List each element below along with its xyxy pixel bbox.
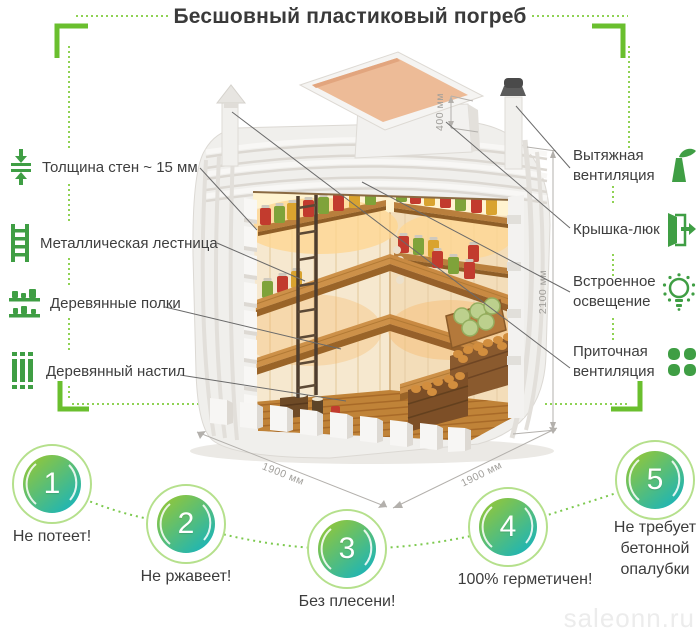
badge-arcs xyxy=(626,451,684,509)
badge-arcs xyxy=(23,455,81,513)
badge-arcs xyxy=(479,498,537,556)
label-text: Металлическая лестница xyxy=(40,235,218,252)
dim-base-width: 1900 мм xyxy=(459,459,504,489)
feature-badge: 2 xyxy=(157,495,215,553)
label-metal-ladder: Металлическая лестница xyxy=(8,224,218,262)
feature-3: 3 Без плесени! xyxy=(307,509,387,613)
badge-arcs xyxy=(157,495,215,553)
feature-5: 5 Не требует бетонной опалубки xyxy=(615,440,695,580)
dim-hatch-height: 400 мм xyxy=(434,93,446,131)
exhaust-vent-icon xyxy=(663,146,697,186)
label-builtin-lighting: Встроенноеосвещение xyxy=(573,272,697,313)
feature-label: Не потеет! xyxy=(0,527,107,548)
feature-badge: 1 xyxy=(23,455,81,513)
dim-base-depth: 1900 мм xyxy=(260,461,306,488)
shelves-icon xyxy=(8,286,42,320)
label-exhaust-vent: Вытяжнаявентиляция xyxy=(573,146,697,187)
label-text: Толщина стен ~ 15 мм xyxy=(42,159,198,176)
feature-label: 100% герметичен! xyxy=(430,570,620,591)
infographic: 400 мм 2100 мм 1900 мм 1900 мм Бесшовный… xyxy=(0,0,700,640)
label-wall-thickness: Толщина стен ~ 15 мм xyxy=(8,148,198,186)
ladder-icon xyxy=(8,224,32,262)
label-text: Вытяжнаявентиляция xyxy=(573,146,655,187)
label-text: Приточнаявентиляция xyxy=(573,342,655,383)
dim-body-height: 2100 мм xyxy=(537,270,549,314)
label-hatch-cover: Крышка-люк xyxy=(573,212,697,248)
feature-ring: 5 xyxy=(615,440,695,520)
feature-ring: 2 xyxy=(146,484,226,564)
label-text: Встроенноеосвещение xyxy=(573,272,656,313)
feature-4: 4 100% герметичен! xyxy=(468,487,548,591)
feature-label: Не ржавеет! xyxy=(121,567,251,588)
feature-ring: 4 xyxy=(468,487,548,567)
label-text: Деревянные полки xyxy=(50,295,181,312)
page-title: Бесшовный пластиковый погреб xyxy=(0,5,700,29)
feature-label: Без плесени! xyxy=(282,592,412,613)
feature-ring: 3 xyxy=(307,509,387,589)
light-bulb-icon xyxy=(661,273,697,311)
feature-1: 1 Не потеет! xyxy=(12,444,92,548)
label-text: Деревянный настил xyxy=(46,363,185,380)
hatch-door-icon xyxy=(663,212,697,248)
label-text: Крышка-люк xyxy=(573,220,660,240)
wall-thickness-icon xyxy=(8,148,34,186)
feature-ring: 1 xyxy=(12,444,92,524)
watermark: saleonn.ru xyxy=(564,603,695,634)
feature-badge: 5 xyxy=(626,451,684,509)
label-wooden-floor: Деревянный настил xyxy=(8,352,185,390)
feature-2: 2 Не ржавеет! xyxy=(146,484,226,588)
label-supply-vent: Приточнаявентиляция xyxy=(573,342,697,383)
label-wooden-shelves: Деревянные полки xyxy=(8,286,181,320)
badge-arcs xyxy=(318,520,376,578)
feature-badge: 4 xyxy=(479,498,537,556)
feature-badge: 3 xyxy=(318,520,376,578)
supply-vent-icon xyxy=(667,347,697,377)
floor-planks-icon xyxy=(8,352,38,390)
feature-label: Не требует бетонной опалубки xyxy=(599,518,700,580)
